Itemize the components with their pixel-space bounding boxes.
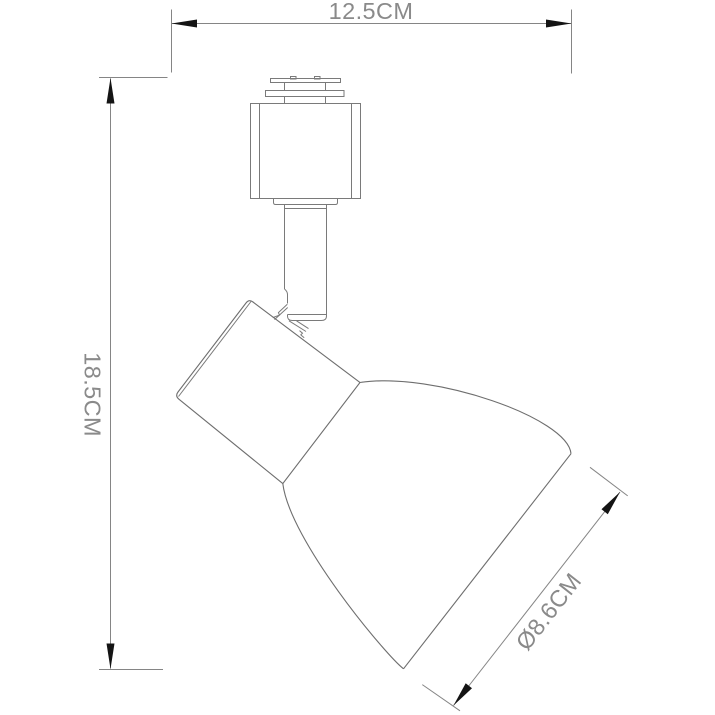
svg-text:12.5CM: 12.5CM (329, 0, 414, 24)
svg-text:18.5CM: 18.5CM (80, 352, 106, 437)
